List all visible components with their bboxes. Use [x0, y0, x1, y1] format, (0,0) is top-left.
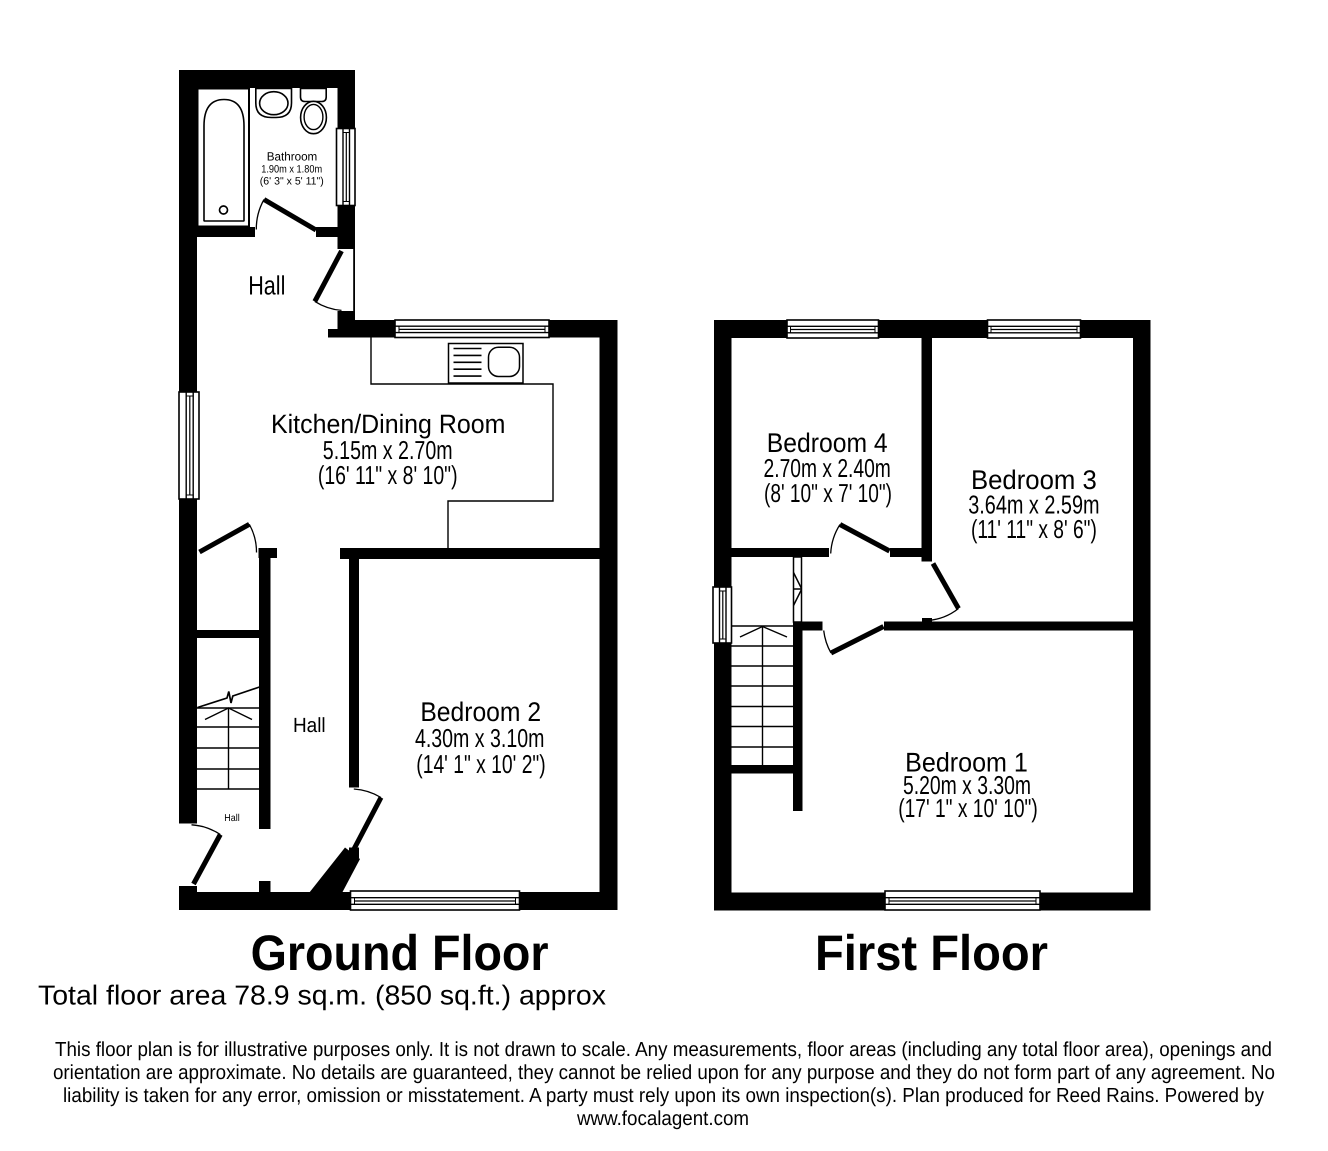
svg-text:Bathroom: Bathroom — [267, 150, 318, 164]
svg-text:(17' 1" x 10' 10"): (17' 1" x 10' 10") — [898, 793, 1038, 823]
svg-text:Total floor area 78.9 sq.m. (8: Total floor area 78.9 sq.m. (850 sq.ft.)… — [38, 980, 606, 1011]
svg-text:liability is taken for any err: liability is taken for any error, omissi… — [63, 1085, 1265, 1107]
svg-text:First Floor: First Floor — [815, 925, 1048, 981]
svg-text:(11' 11" x 8' 6"): (11' 11" x 8' 6") — [971, 514, 1097, 544]
svg-text:Hall: Hall — [224, 813, 239, 824]
svg-text:orientation are approximate. N: orientation are approximate. No details … — [53, 1062, 1275, 1084]
svg-text:Ground Floor: Ground Floor — [251, 925, 549, 981]
svg-text:1.90m x 1.80m: 1.90m x 1.80m — [261, 164, 322, 176]
svg-text:(16' 11" x 8' 10"): (16' 11" x 8' 10") — [318, 460, 458, 490]
svg-text:(6' 3" x 5' 11"): (6' 3" x 5' 11") — [260, 176, 324, 188]
svg-text:Hall: Hall — [293, 714, 326, 737]
svg-text:This floor plan is for illustr: This floor plan is for illustrative purp… — [55, 1039, 1272, 1061]
svg-text:(8' 10" x 7' 10"): (8' 10" x 7' 10") — [764, 478, 892, 508]
svg-text:www.focalagent.com: www.focalagent.com — [576, 1108, 749, 1130]
svg-text:Hall: Hall — [248, 271, 285, 301]
svg-text:(14' 1" x 10' 2"): (14' 1" x 10' 2") — [416, 749, 545, 779]
